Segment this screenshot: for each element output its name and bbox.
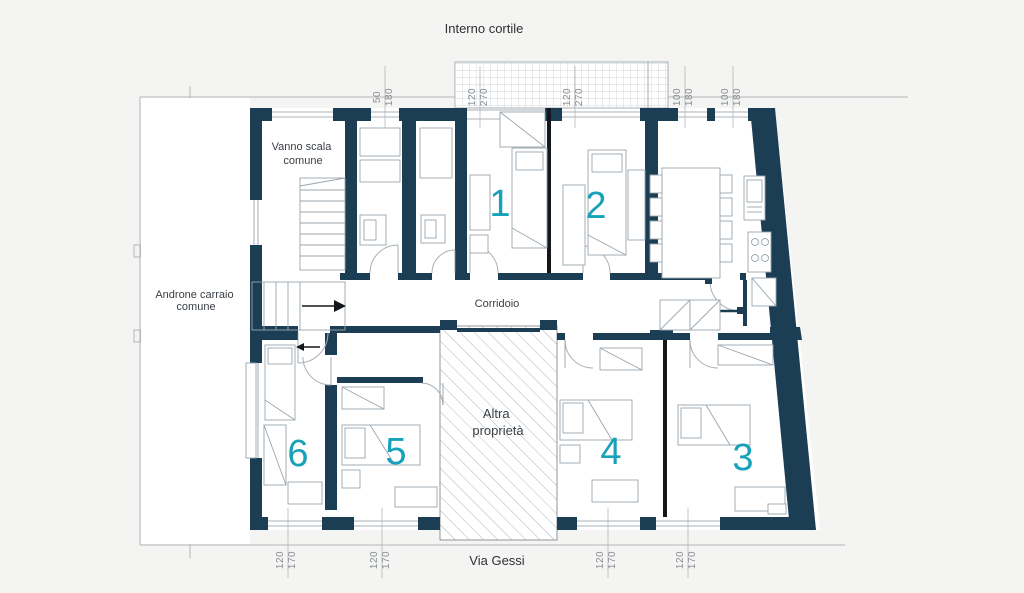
- dim-bottom-1-a: 120: [369, 551, 380, 569]
- room-number-2: 2: [585, 185, 606, 227]
- dim-top-1-b: 270: [479, 88, 490, 106]
- dim-top-0-a: 50: [372, 91, 383, 103]
- kitchen-icon: [650, 168, 776, 330]
- label-corridor: Corridoio: [475, 298, 520, 310]
- dim-top-4-a: 100: [720, 88, 731, 106]
- dim-top-3-b: 180: [684, 88, 695, 106]
- room-number-6: 6: [287, 433, 308, 475]
- dim-top-0-b: 180: [384, 88, 395, 106]
- floor-plan-canvas: 50 180 120 270 120 270 100 180 100 180 1…: [0, 0, 1024, 593]
- dim-top-4-b: 180: [732, 88, 743, 106]
- room-number-5: 5: [385, 431, 406, 473]
- dim-bottom-1-b: 170: [381, 551, 392, 569]
- dim-top-2-a: 120: [562, 88, 573, 106]
- title-via-gessi: Via Gessi: [469, 553, 525, 568]
- dim-bottom-3-b: 170: [687, 551, 698, 569]
- dim-top-3-a: 100: [672, 88, 683, 106]
- floor-plan-svg: 50 180 120 270 120 270 100 180 100 180 1…: [0, 0, 1024, 593]
- dim-bottom-2-b: 170: [607, 551, 618, 569]
- dim-bottom-2-a: 120: [595, 551, 606, 569]
- dim-bottom-0-b: 170: [287, 551, 298, 569]
- title-interno-cortile: Interno cortile: [445, 21, 524, 36]
- dim-bottom-0-a: 120: [275, 551, 286, 569]
- dim-bottom-3-a: 120: [675, 551, 686, 569]
- dim-top-1-a: 120: [467, 88, 478, 106]
- room-number-1: 1: [489, 183, 510, 225]
- dim-top-2-b: 270: [574, 88, 585, 106]
- room-number-3: 3: [732, 437, 753, 479]
- room-number-4: 4: [600, 431, 621, 473]
